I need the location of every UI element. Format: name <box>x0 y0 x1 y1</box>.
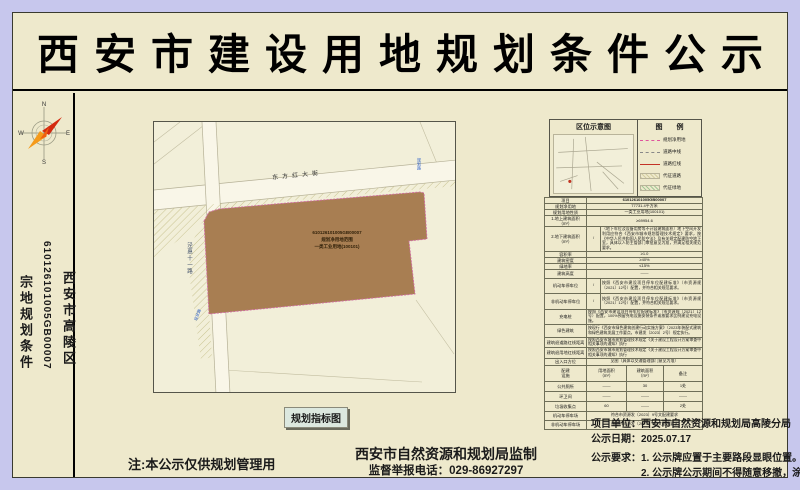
parcel-annotation-code: 610126101005GB00007 <box>271 230 403 237</box>
usage-note: 注:本公示仅供规划管理用 <box>128 454 275 473</box>
legend-label-net-land: 规划净用地 <box>663 137 686 143</box>
table-row: 1.地上建筑面积（m²）≥69954.6 <box>545 216 703 227</box>
legend-label-road-land: 代征道路 <box>663 173 681 179</box>
report-hotline: 监督举报电话：029-86927297 <box>341 462 551 478</box>
legend-swatch-centerline <box>640 152 660 153</box>
legend-item-net-land: 规划净用地 <box>640 134 699 146</box>
parcel-map: 东方红大街 泾惠十一路 规划路 现状路 610126101005GB00007 … <box>153 121 456 393</box>
table-row: 机动车停车位/按照《西安市建设项目停车位配建标准》（市资源规〔2021〕12号）… <box>545 278 703 293</box>
parcel-map-drawing <box>154 122 456 393</box>
legend-item-green-land: 代征绿地 <box>640 182 699 194</box>
table-row: 公共厕所——301处 <box>545 381 703 391</box>
table-row: 建筑高度—— <box>545 269 703 278</box>
planning-indicator-table-area: 项目610126101005GB00007 规划净用地77731.4平方米 规划… <box>544 197 702 430</box>
table-row: 建筑退道路红线距离按照西安市城市规划管理技术规定《关于建设工程设计方案审查中相关… <box>545 337 703 347</box>
page-title: 西安市建设用地规划条件公示 <box>22 21 778 82</box>
requirement-line-1: 公示要求：1. 公示牌应置于主要路段显眼位置。 <box>591 451 787 466</box>
doc-type-vertical-label: 宗地规划条件 <box>16 275 35 371</box>
planning-indicator-table: 项目610126101005GB00007 规划净用地77731.4平方米 规划… <box>544 197 703 366</box>
compass-icon: N E S W <box>18 101 70 165</box>
compass-n-label: N <box>42 102 46 108</box>
legend-panel: 图 例 规划净用地 道路中线 道路红线 代征道路 代征绿地 <box>638 119 702 197</box>
legend-title: 图 例 <box>640 122 699 132</box>
compass-s-label: S <box>42 160 46 165</box>
notice-poster-page: { "title": "西安市建设用地规划条件公示", "left_strip"… <box>0 0 800 490</box>
legend-label-redline: 道路红线 <box>663 161 681 167</box>
legend-item-road-redline: 道路红线 <box>640 158 699 170</box>
notice-poster: 西安市建设用地规划条件公示 N E S W 宗地规划条件 61012610100… <box>12 12 788 478</box>
table-row: 环卫间—————— <box>545 391 703 401</box>
legend-item-road-centerline: 道路中线 <box>640 146 699 158</box>
publish-date: 公示日期：2025.07.17 <box>591 432 787 447</box>
legend-label-green-land: 代征绿地 <box>663 185 681 191</box>
location-sketch-title: 区位示意图 <box>550 120 637 132</box>
legend-swatch-net-land-line <box>640 140 660 141</box>
table-row: 配建 设施 用地面积 （m²） 建筑面积 （m²） 备注 <box>545 365 703 381</box>
table-row: 建筑退用地红线距离按照西安市城市规划管理技术规定《关于建设工程设计方案审查中相关… <box>545 348 703 358</box>
location-sketch-panel: 区位示意图 <box>549 119 638 197</box>
legend-swatch-road-land <box>640 173 660 179</box>
legend-label-centerline: 道路中线 <box>663 149 681 155</box>
district-vertical-label: 西安市高陵区 <box>59 271 78 367</box>
compass-e-label: E <box>66 131 70 137</box>
map-blue-label-top-right: 规划路 <box>416 158 422 170</box>
location-sketch-map <box>553 134 634 194</box>
table-row: 绿色建筑按现行《西安市绿色建筑创建行动实施方案》（2023年装配式建筑和绿色建筑… <box>545 324 703 337</box>
project-unit: 项目单位：西安市自然资源和规划局高陵分局 <box>591 417 787 432</box>
compass-w-label: W <box>18 131 24 137</box>
map-caption-button: 规划指标图 <box>284 407 348 428</box>
parcel-annotation-scope: 规划净用地范围 <box>271 237 403 244</box>
table-row: 非机动车停车位/按照《西安市建设项目停车位配建标准》（市资源规〔2021〕12号… <box>545 293 703 309</box>
legend-swatch-green-land <box>640 185 660 191</box>
table-row: 充电桩按照《西安市建设项目停车位配建标准》（市资源规〔2021〕12号）配置，1… <box>545 309 703 324</box>
requirement-line-2: 2. 公示牌公示期间不得随意移撤，涂改。 <box>591 466 787 481</box>
parcel-annotation-usage: 一类工业用地(100101) <box>271 244 403 251</box>
parcel-number-vertical: 610126101005GB00007 <box>41 241 52 370</box>
legend-item-road-land: 代征道路 <box>640 170 699 182</box>
parcel-annotation: 610126101005GB00007 规划净用地范围 一类工业用地(10010… <box>271 230 403 251</box>
table-row: 垃圾收集点60——2处 <box>545 401 703 411</box>
road-label-jinghui11: 泾惠十一路 <box>185 242 193 275</box>
table-row: 2.地下建筑面积（m²）/（地下车位及设备用房等不计容建筑面积）地下空间开发利用… <box>545 227 703 251</box>
authority-made-by: 西安市自然资源和规划局监制 <box>341 444 551 464</box>
left-strip: N E S W 宗地规划条件 610126101005GB00007 西安市高陵… <box>13 93 75 477</box>
title-bar: 西安市建设用地规划条件公示 <box>13 13 787 91</box>
publication-info-block: 项目单位：西安市自然资源和规划局高陵分局 公示日期：2025.07.17 公示要… <box>591 417 787 481</box>
legend-swatch-redline <box>640 164 660 165</box>
